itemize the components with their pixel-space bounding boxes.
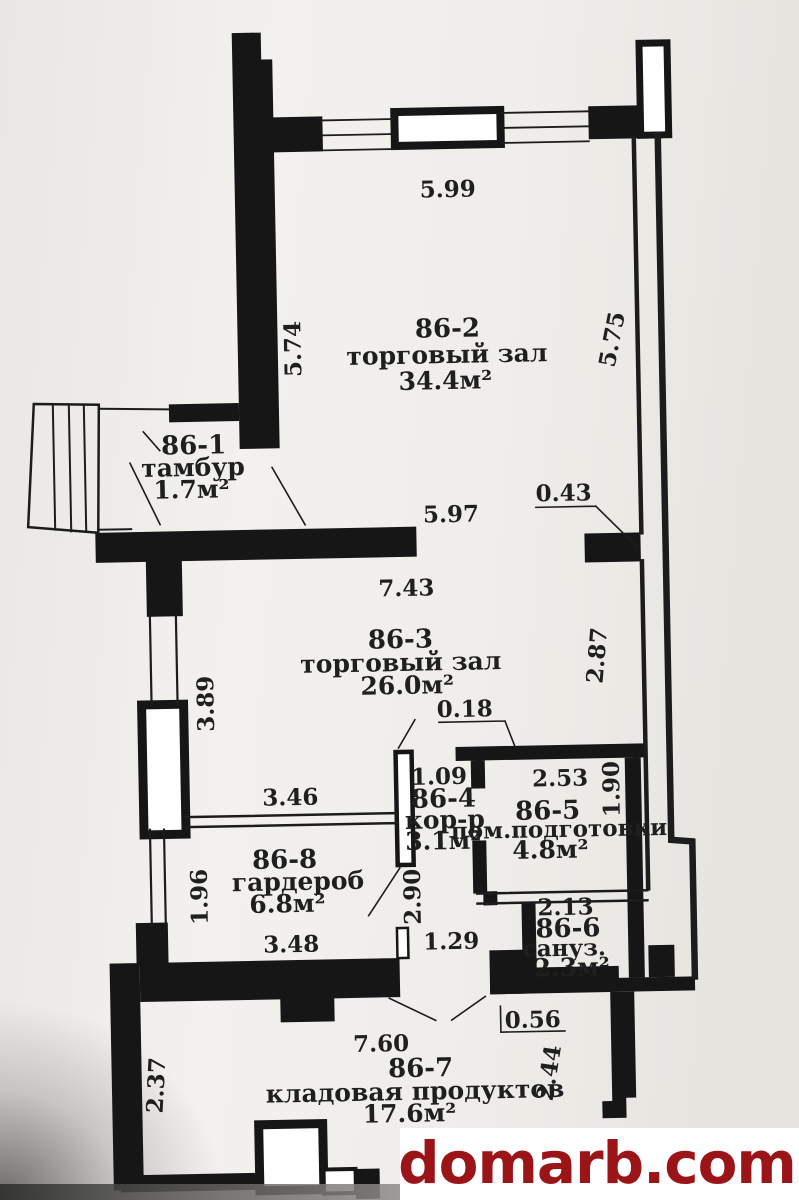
dim-3-89: 3.89: [192, 675, 220, 732]
dim-2-90: 2.90: [399, 869, 427, 926]
watermark: domarb.com: [398, 1128, 799, 1200]
dim-5-97: 5.97: [423, 500, 480, 528]
watermark-text: domarb.com: [398, 1129, 796, 1197]
dim-0-18: 0.18: [436, 695, 493, 723]
room-86-7-area: 17.6м²: [362, 1098, 456, 1129]
room-86-2-area: 34.4м²: [398, 365, 492, 396]
dim-5-99: 5.99: [419, 175, 476, 203]
dim-1-29: 1.29: [423, 928, 480, 956]
dim-2-53: 2.53: [532, 764, 589, 792]
dim-7-43: 7.43: [378, 574, 435, 602]
floor-plan-svg: 86-2 торговый зал 34.4м² 5.99 5.74 5.75 …: [0, 0, 799, 1200]
floor-plan-scan: 86-2 торговый зал 34.4м² 5.99 5.74 5.75 …: [0, 0, 799, 1200]
dim-1-90: 1.90: [598, 761, 626, 818]
dim-0-43: 0.43: [535, 479, 592, 507]
room-86-5-area: 4.8м²: [512, 834, 589, 864]
room-86-6-area: 2.3м²: [533, 952, 610, 982]
dim-3-46: 3.46: [262, 784, 319, 812]
room-86-1-area: 1.7м²: [153, 474, 230, 504]
bottom-edge-shadow: [0, 1184, 400, 1200]
dim-2-87: 2.87: [581, 626, 613, 684]
corner-shadow: [0, 880, 360, 1200]
dim-5-74: 5.74: [279, 321, 307, 378]
dim-0-56: 0.56: [504, 1006, 561, 1034]
